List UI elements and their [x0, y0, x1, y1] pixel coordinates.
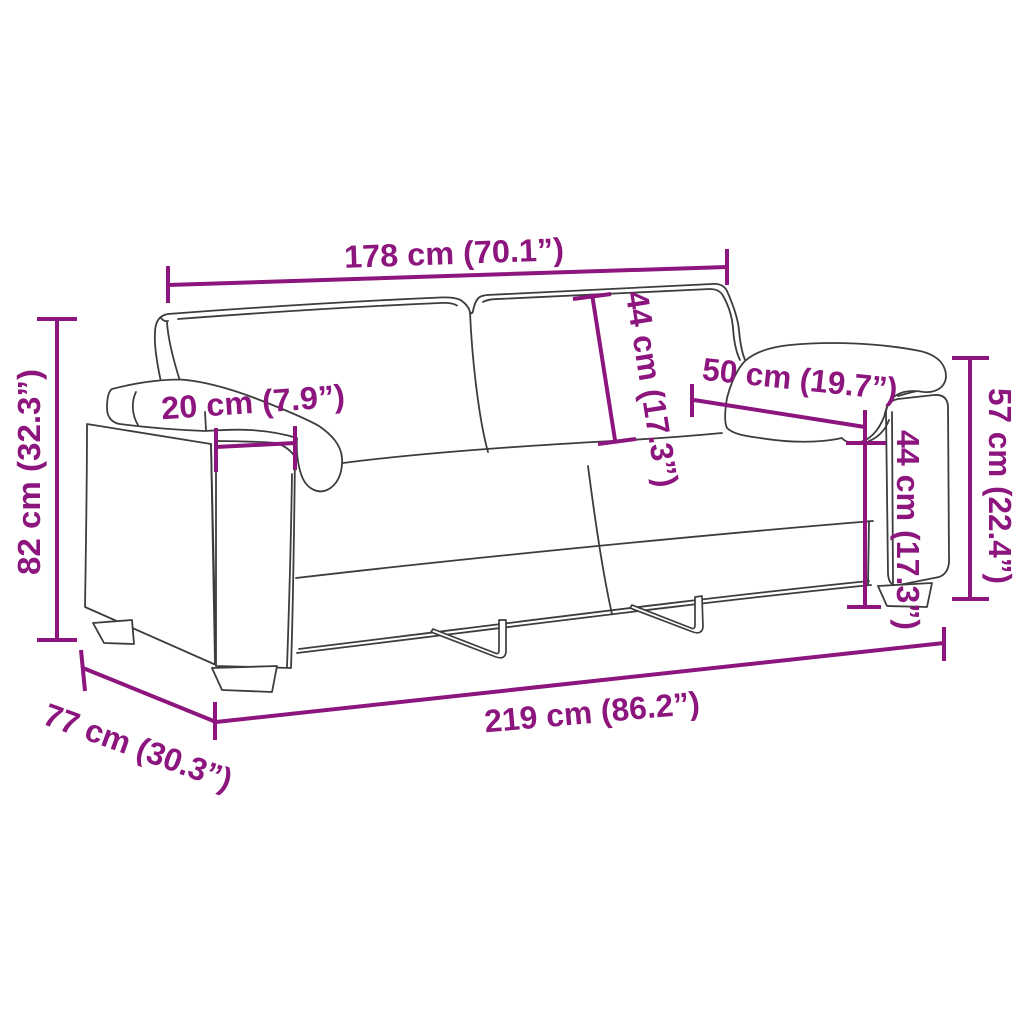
- svg-text:57 cm (22.4”): 57 cm (22.4”): [982, 388, 1018, 584]
- svg-text:178 cm (70.1”): 178 cm (70.1”): [343, 231, 564, 275]
- svg-text:82 cm (32.3”): 82 cm (32.3”): [11, 369, 47, 575]
- svg-text:44 cm (17.3”): 44 cm (17.3”): [890, 430, 926, 630]
